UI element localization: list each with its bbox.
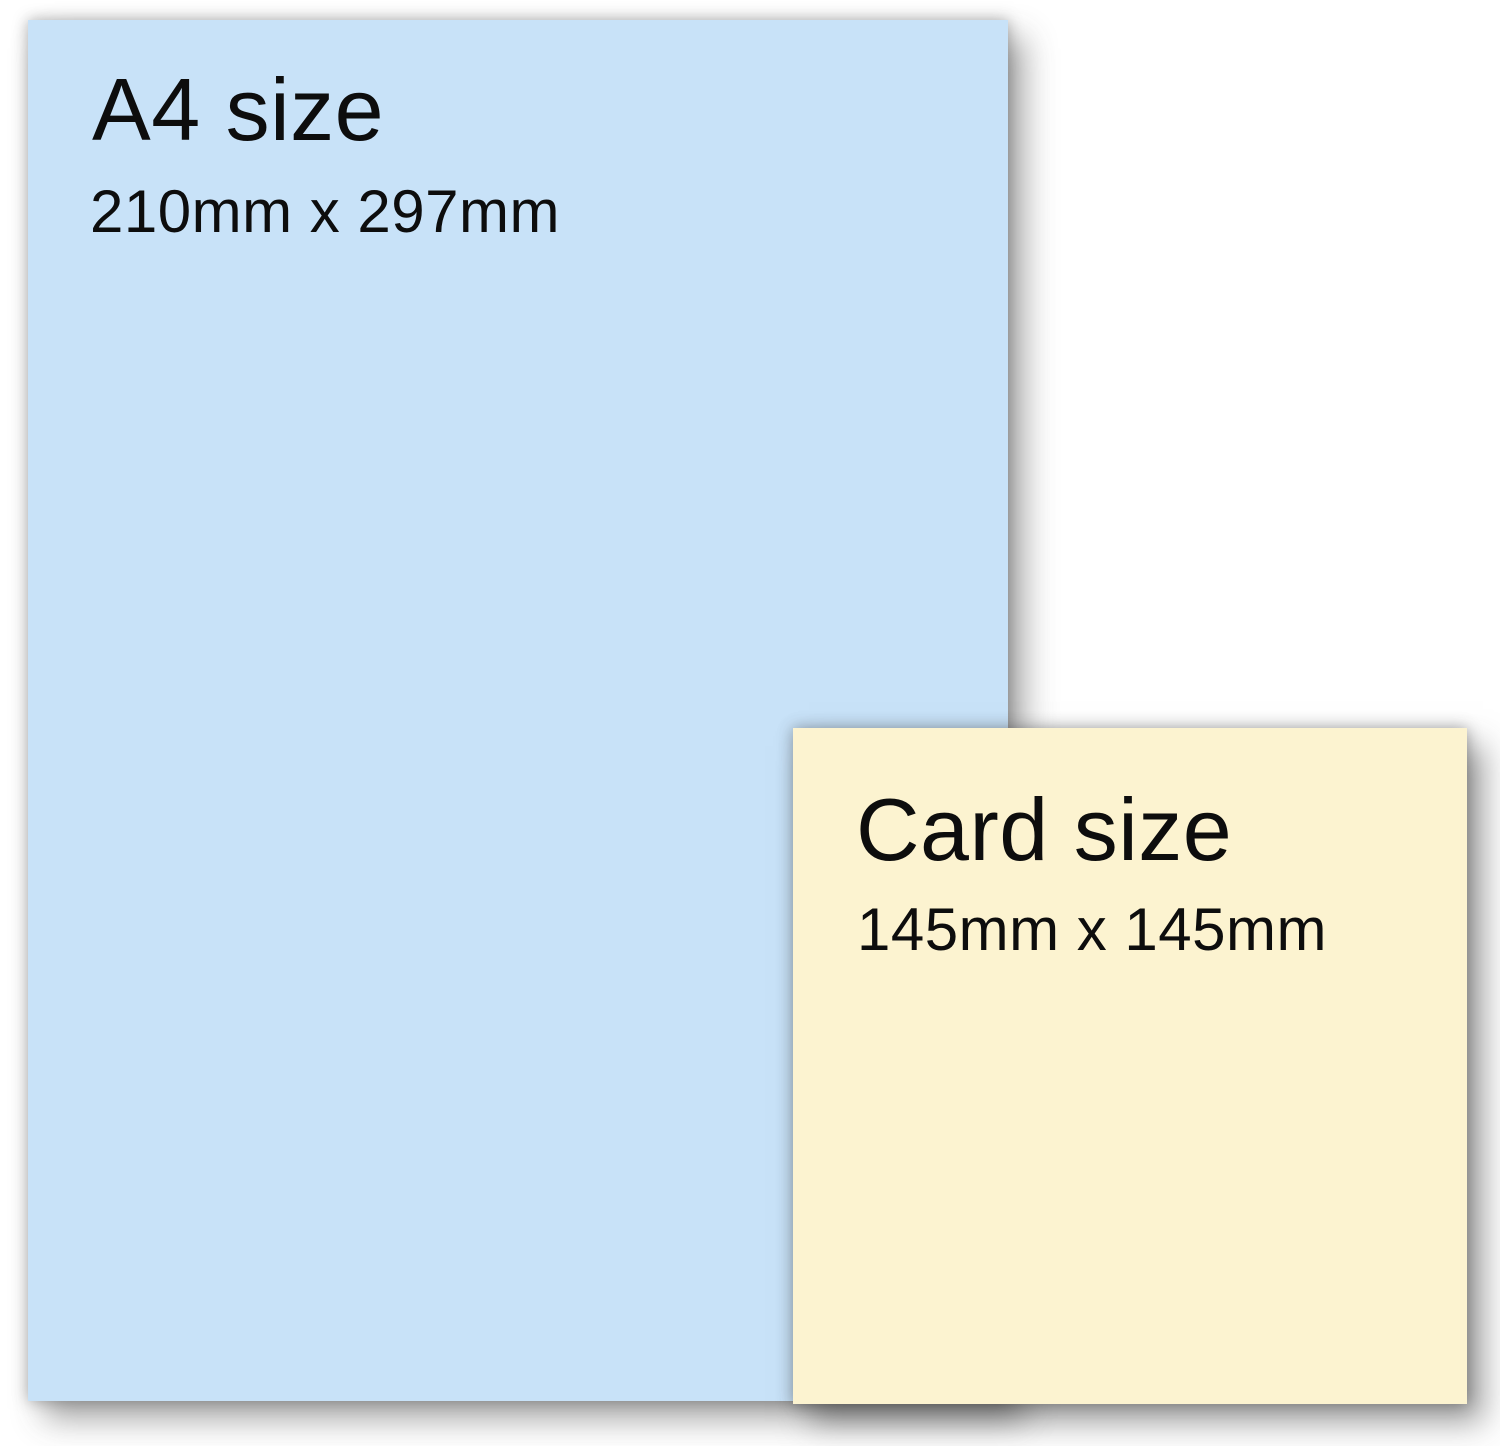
card-sheet-dimensions: 145mm x 145mm bbox=[857, 898, 1327, 961]
size-comparison-canvas: A4 size 210mm x 297mm Card size 145mm x … bbox=[0, 0, 1500, 1446]
card-sheet-title: Card size bbox=[856, 784, 1232, 876]
card-sheet: Card size 145mm x 145mm bbox=[793, 728, 1467, 1404]
a4-sheet-title: A4 size bbox=[92, 64, 384, 156]
a4-sheet-dimensions: 210mm x 297mm bbox=[90, 180, 560, 243]
